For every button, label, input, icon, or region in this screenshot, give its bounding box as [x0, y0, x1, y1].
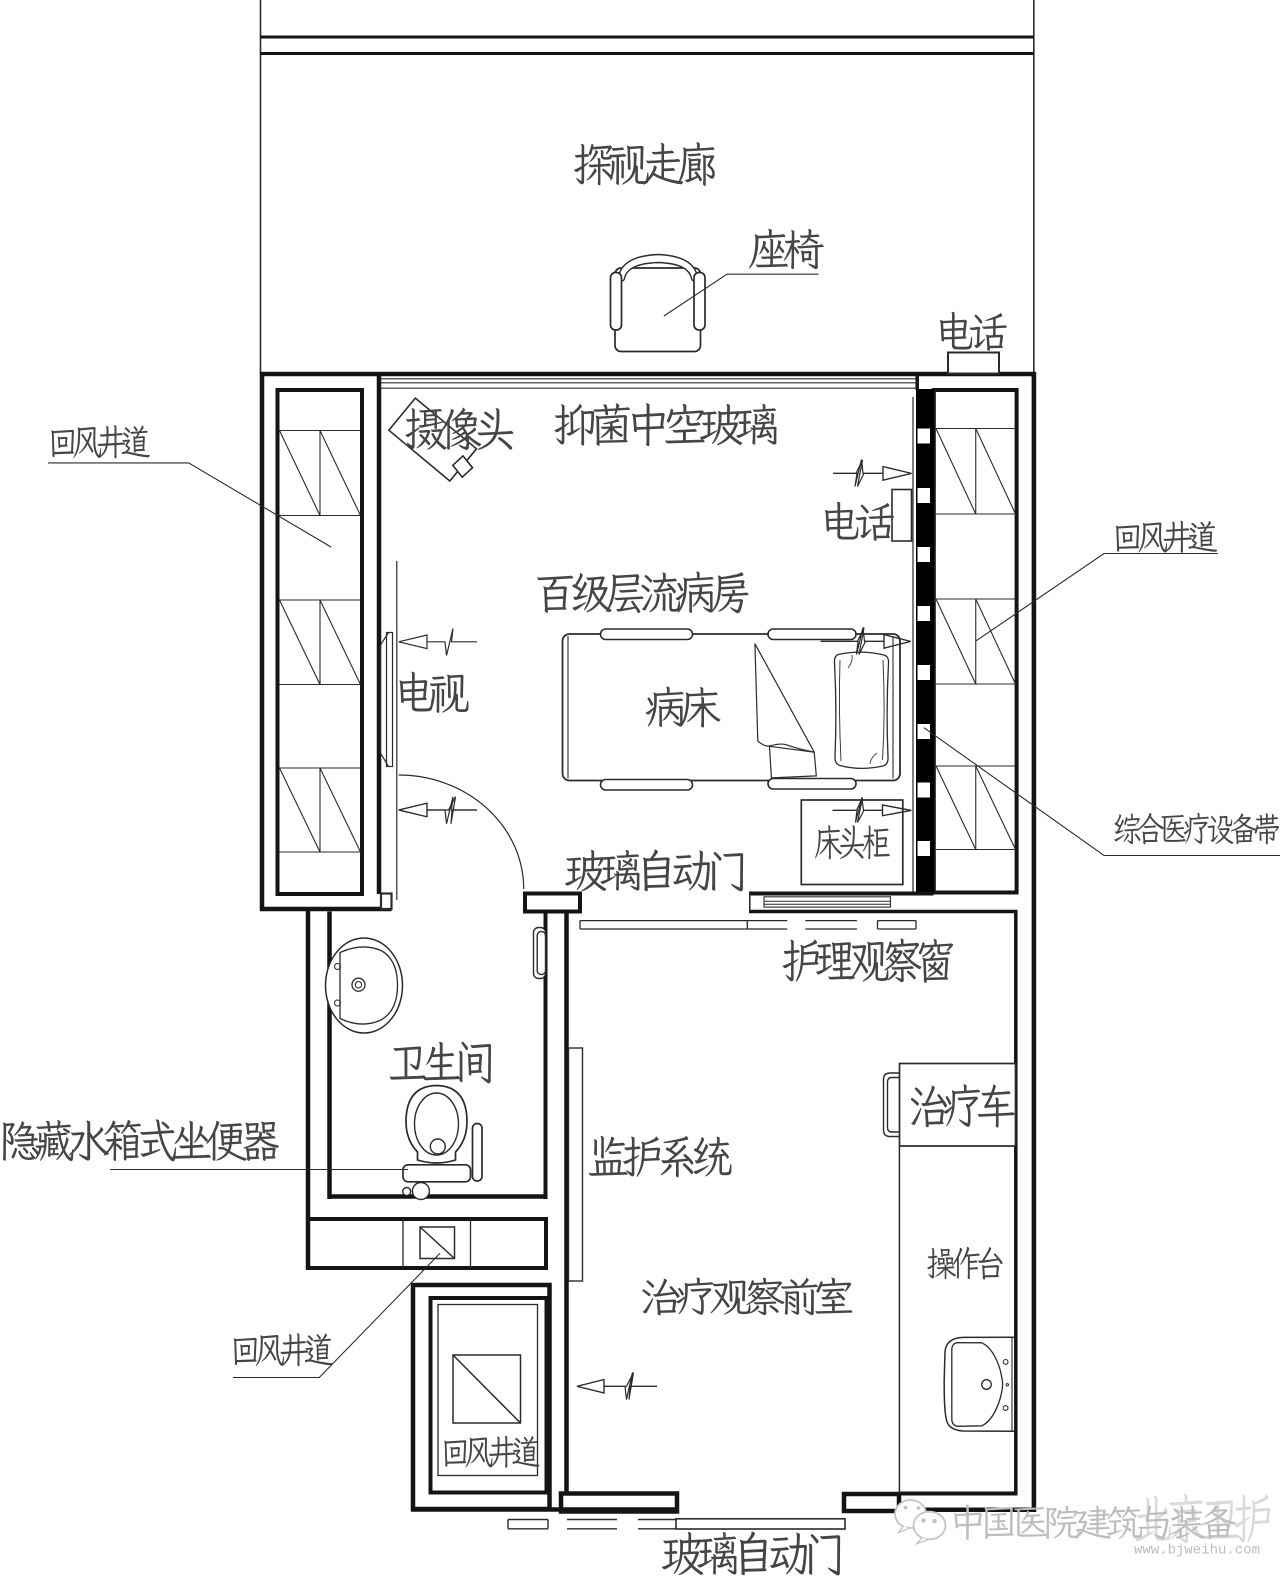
- svg-text:www.bjweihu.com: www.bjweihu.com: [1134, 1543, 1260, 1559]
